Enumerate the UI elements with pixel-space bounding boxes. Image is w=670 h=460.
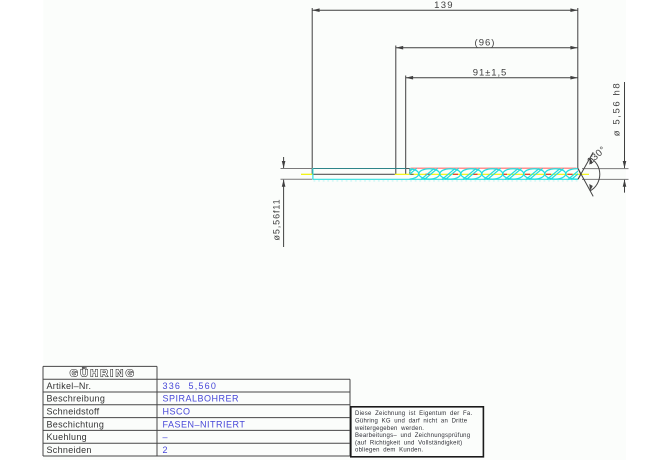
svg-text:SPIRALBOHRER: SPIRALBOHRER [163, 394, 240, 404]
svg-text:Gühring KG und darf nicht an D: Gühring KG und darf nicht an Dritte [355, 419, 468, 425]
svg-text:FASEN–NITRIERT: FASEN–NITRIERT [163, 419, 246, 429]
svg-text:Schneiden: Schneiden [47, 445, 92, 455]
svg-text:91±1,5: 91±1,5 [473, 67, 507, 78]
svg-text:ø5,56f11: ø5,56f11 [271, 198, 281, 240]
svg-text:ø 5,56 h8: ø 5,56 h8 [612, 82, 623, 137]
svg-text:Beschichtung: Beschichtung [47, 419, 105, 429]
svg-text:–: – [163, 432, 169, 442]
svg-text:336 5,560: 336 5,560 [163, 381, 218, 391]
svg-text:GÜHRING: GÜHRING [70, 367, 136, 380]
svg-text:weitergegeben werden.: weitergegeben werden. [354, 426, 424, 432]
svg-text:obliegen dem Kunden.: obliegen dem Kunden. [355, 448, 423, 454]
svg-text:Beschreibung: Beschreibung [47, 394, 106, 404]
svg-text:(auf Richtigkeit und Vollständ: (auf Richtigkeit und Vollständigkeit) [355, 440, 462, 446]
svg-text:Diese Zeichnung ist Eigentum d: Diese Zeichnung ist Eigentum der Fa. [355, 411, 472, 417]
svg-text:2: 2 [163, 445, 169, 455]
svg-text:Schneidstoff: Schneidstoff [47, 407, 100, 417]
svg-text:Bearbeitungs– und Zeichnungspr: Bearbeitungs– und Zeichnungsprüfung [355, 433, 470, 439]
svg-text:Artikel–Nr.: Artikel–Nr. [47, 381, 92, 391]
svg-text:HSCO: HSCO [163, 407, 191, 417]
svg-text:139: 139 [434, 0, 454, 11]
svg-text:Kuehlung: Kuehlung [47, 432, 87, 442]
svg-text:(96): (96) [475, 37, 496, 48]
